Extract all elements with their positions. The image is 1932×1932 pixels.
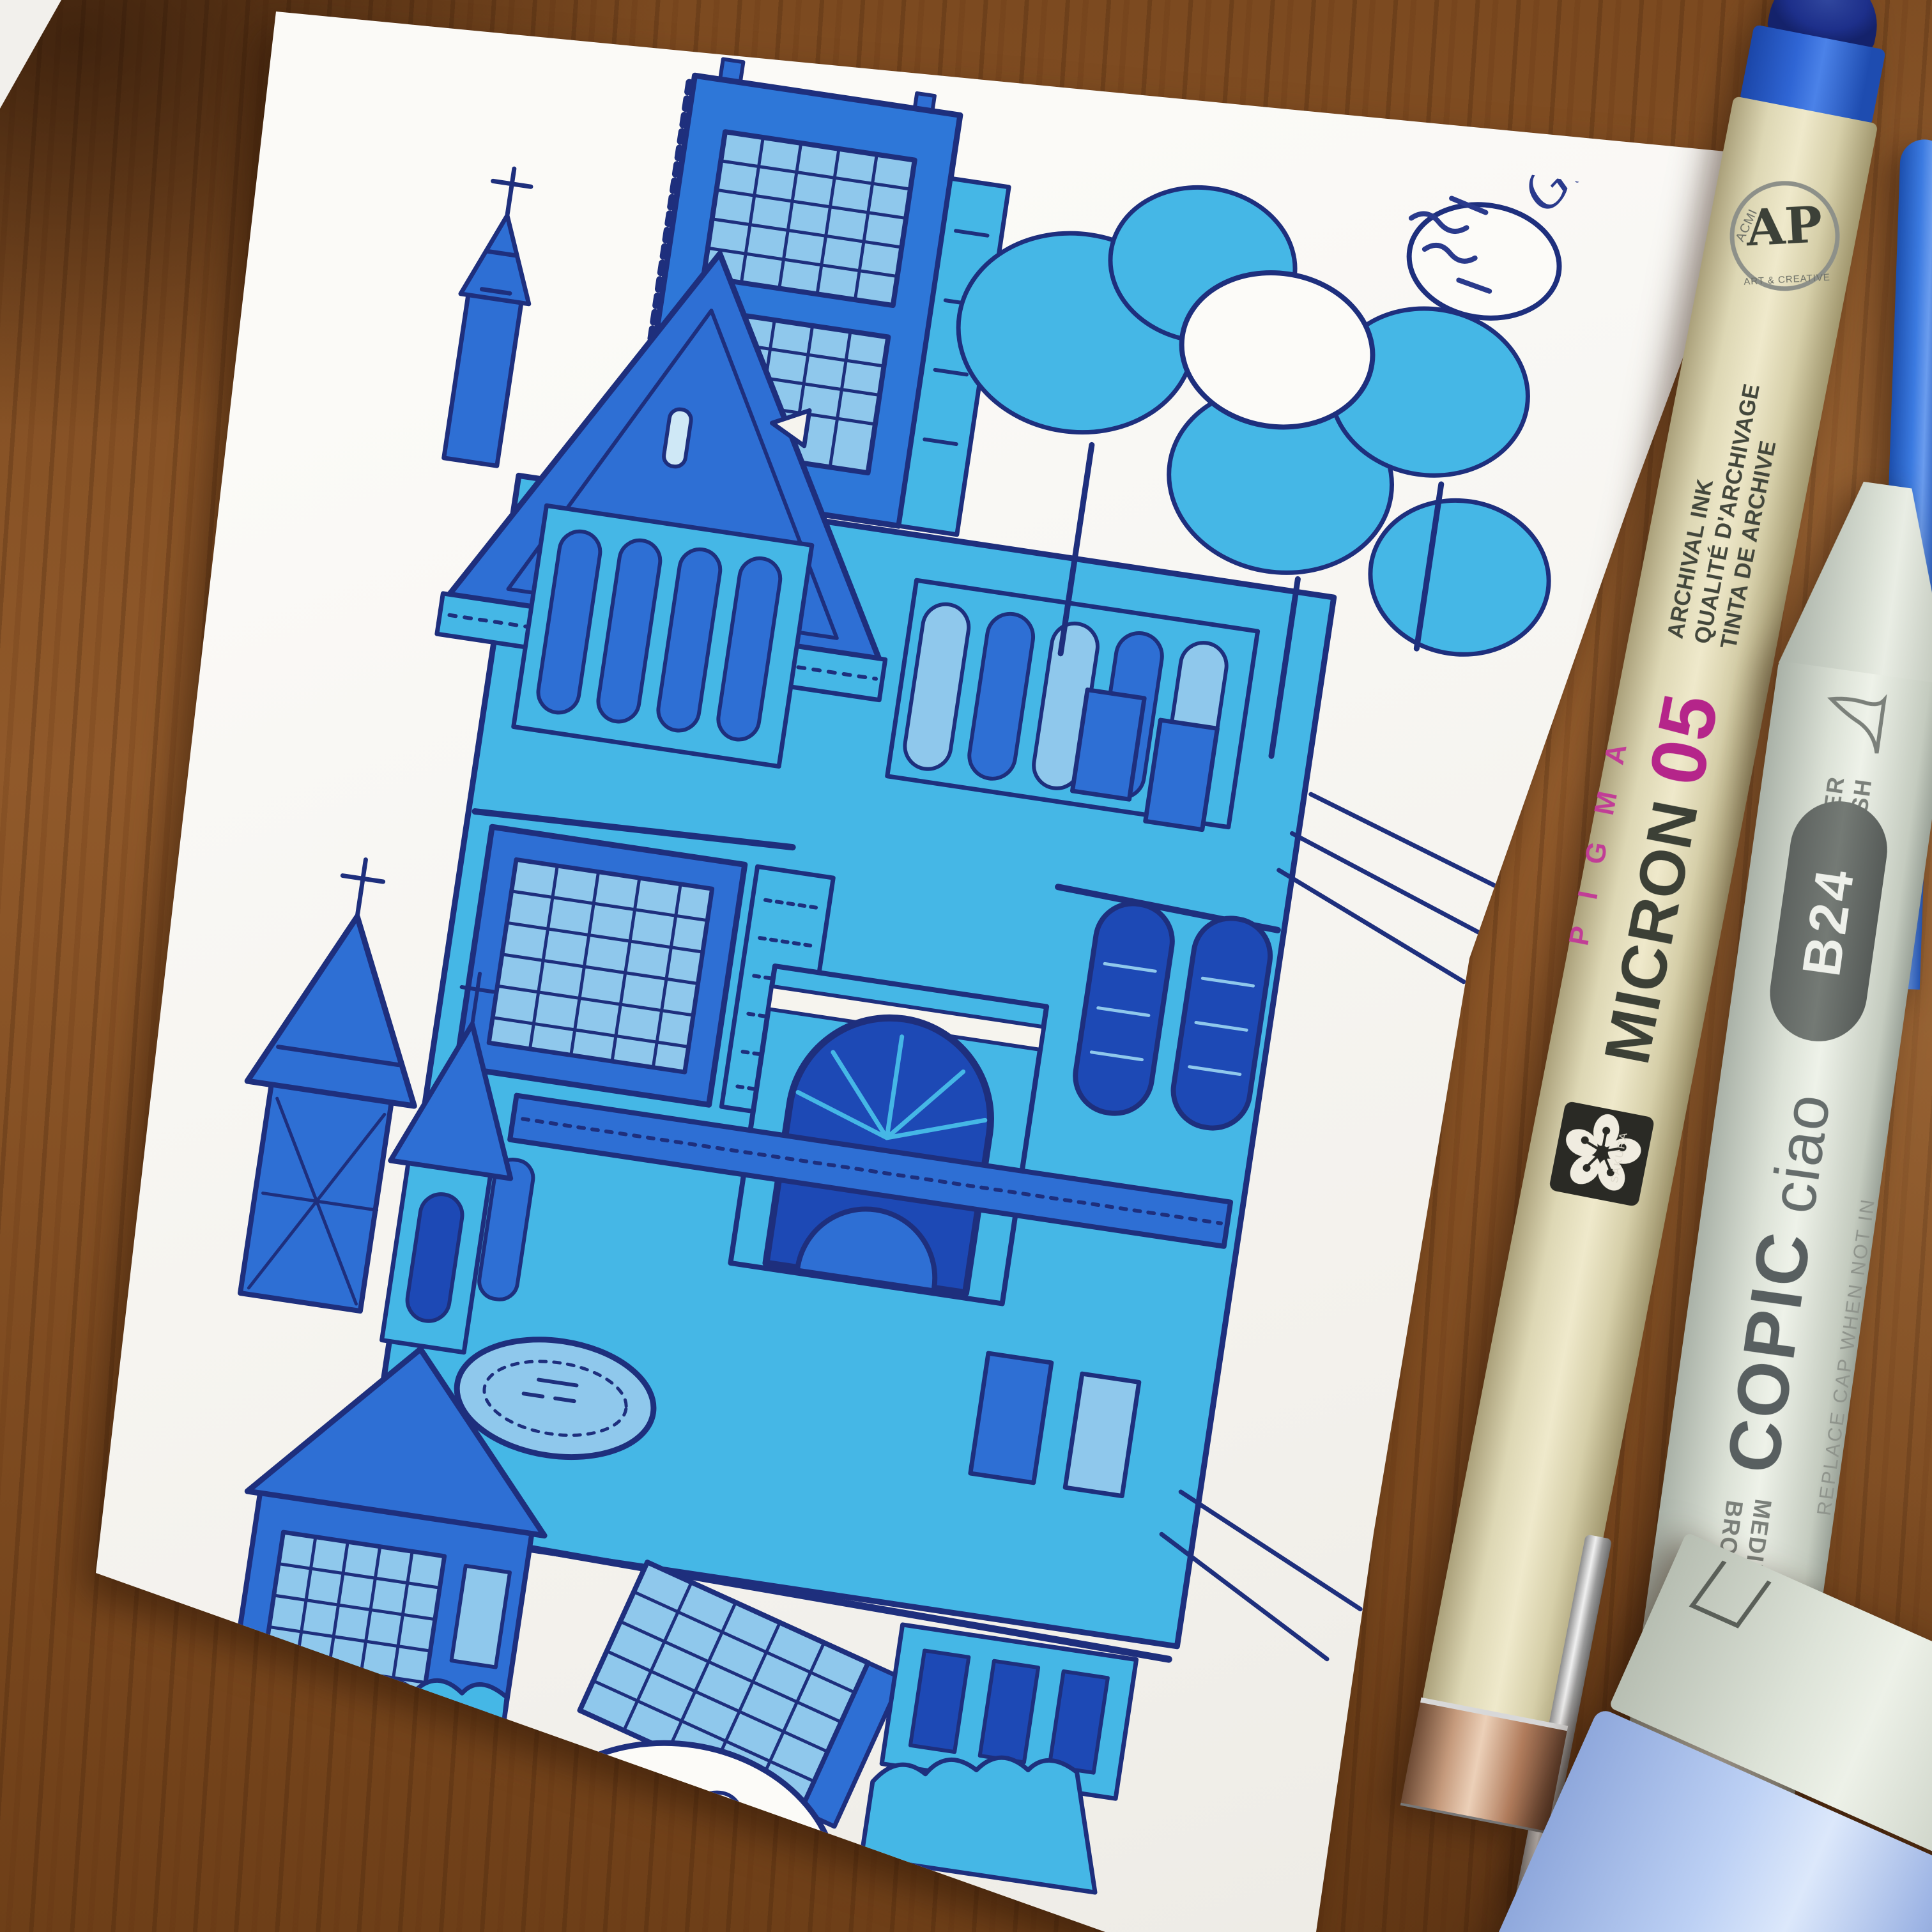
ap-letters: AP xyxy=(1733,199,1836,254)
photo-scene: G.D. ACMI AP ART & CREATIVE ARCHIVAL INK… xyxy=(0,0,1932,1932)
third-marker-tip-icon xyxy=(1689,1561,1772,1629)
nib-size: 05 xyxy=(1632,685,1735,792)
castle-drawing: G.D. xyxy=(27,0,1646,1932)
model-name: MICRON xyxy=(1591,794,1712,1069)
brush-tip-cone xyxy=(1779,473,1932,687)
sakura-logo: SAKURA xyxy=(1549,1101,1655,1207)
brush-tip-icon xyxy=(1814,680,1901,767)
color-code-text: B24 xyxy=(1790,862,1867,980)
signature-text: G.D. xyxy=(1511,100,1633,224)
left-colonnade-group xyxy=(514,505,812,766)
copic-brand-text: COPIC xyxy=(1712,1225,1827,1478)
sakura-flower-icon xyxy=(1549,1101,1655,1207)
ciao-series-text: ciao xyxy=(1757,1089,1843,1217)
